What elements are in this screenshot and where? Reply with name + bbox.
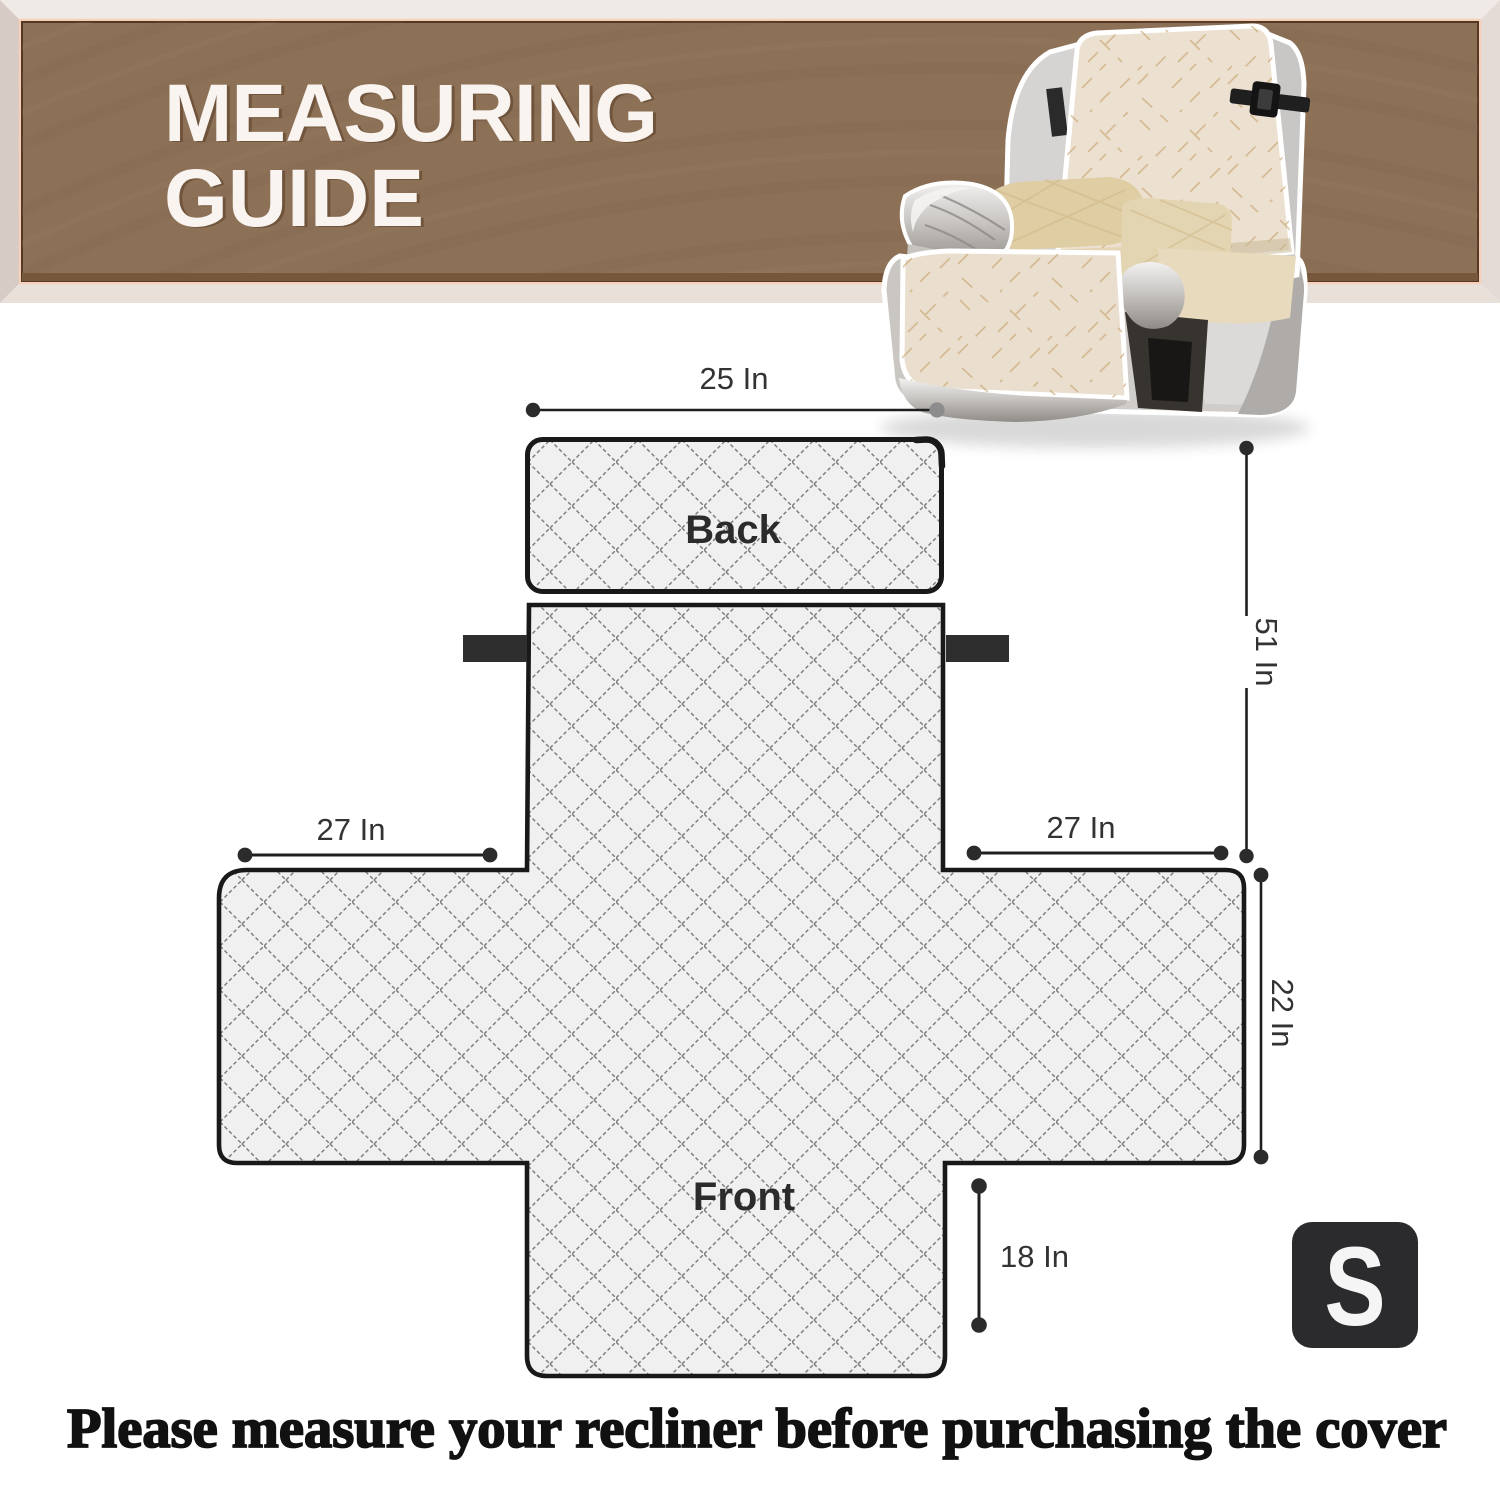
svg-text:27 In: 27 In [317, 812, 386, 847]
svg-text:27 In: 27 In [1047, 810, 1116, 845]
svg-text:22 In: 22 In [1265, 979, 1300, 1048]
svg-text:Front: Front [693, 1175, 795, 1219]
svg-text:Back: Back [685, 508, 781, 552]
svg-text:MEASURING: MEASURING [164, 68, 658, 159]
svg-text:51 In: 51 In [1249, 618, 1284, 687]
svg-text:18 In: 18 In [1000, 1239, 1069, 1274]
svg-text:Please measure your recliner b: Please measure your recliner before purc… [67, 1398, 1447, 1460]
svg-text:GUIDE: GUIDE [164, 153, 424, 244]
svg-text:25 In: 25 In [700, 361, 769, 396]
svg-text:S: S [1324, 1223, 1385, 1349]
